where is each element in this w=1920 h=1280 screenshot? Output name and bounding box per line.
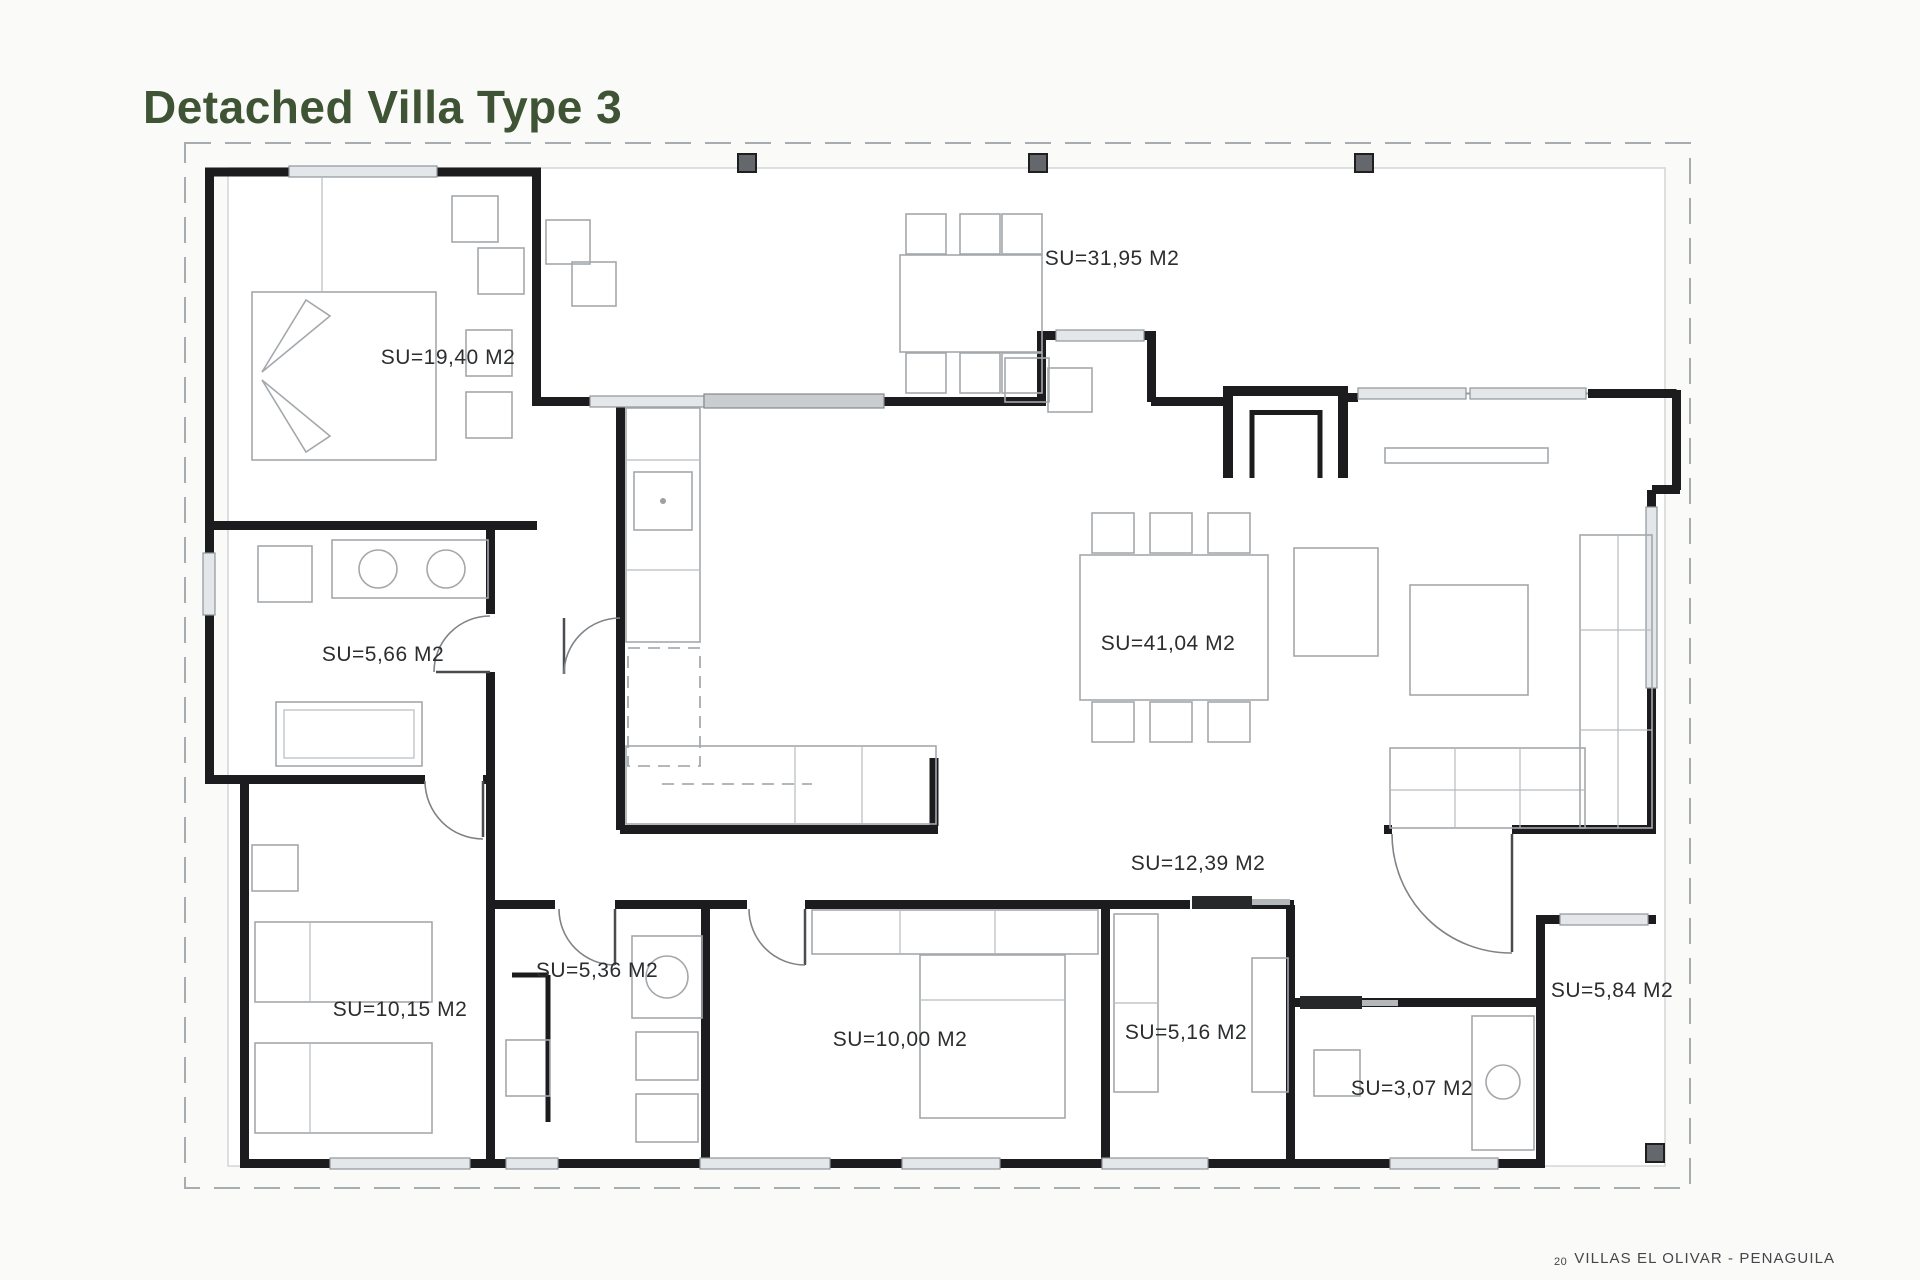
room-label-bathroom-1: SU=5,66 M2	[322, 643, 444, 666]
window	[289, 166, 437, 177]
window	[1560, 914, 1648, 925]
pillar-icon	[1029, 154, 1047, 172]
window	[1470, 388, 1586, 399]
floor-plan: SU=19,40 M2 SU=31,95 M2 SU=5,66 M2 SU=41…	[0, 0, 1920, 1280]
room-label-hallway: SU=12,39 M2	[1131, 852, 1266, 875]
door-panel-dressing	[1192, 896, 1252, 909]
pillar-icon	[1646, 1144, 1664, 1162]
window	[1358, 388, 1466, 399]
window	[1390, 1158, 1498, 1169]
door-stub	[1362, 1000, 1398, 1006]
room-label-bedroom-1: SU=19,40 M2	[381, 346, 516, 369]
stove-knob	[660, 498, 666, 504]
window	[506, 1158, 558, 1169]
window	[1056, 330, 1144, 341]
pillar-icon	[1355, 154, 1373, 172]
window	[704, 394, 884, 408]
room-label-bedroom-2: SU=10,15 M2	[333, 998, 468, 1021]
pillar-icon	[738, 154, 756, 172]
footer-project-name: VILLAS EL OLIVAR - PENAGUILA	[1574, 1250, 1835, 1267]
footer-page-number: 20	[1554, 1256, 1567, 1268]
window	[203, 553, 215, 615]
room-label-living-dining: SU=41,04 M2	[1101, 632, 1236, 655]
window	[330, 1158, 470, 1169]
window	[590, 396, 704, 407]
footer: 20VILLAS EL OLIVAR - PENAGUILA	[1554, 1250, 1835, 1267]
window	[1102, 1158, 1208, 1169]
room-label-bathroom-2: SU=5,36 M2	[536, 959, 658, 982]
room-label-porch: SU=5,84 M2	[1551, 979, 1673, 1002]
window	[902, 1158, 1000, 1169]
room-label-dressing: SU=5,16 M2	[1125, 1021, 1247, 1044]
door-panel-wc	[1300, 996, 1362, 1009]
wall-left-lower	[205, 779, 249, 1168]
room-label-terrace: SU=31,95 M2	[1045, 247, 1180, 270]
window	[700, 1158, 830, 1169]
room-label-bedroom-3: SU=10,00 M2	[833, 1028, 968, 1051]
room-label-wc: SU=3,07 M2	[1351, 1077, 1473, 1100]
door-stub	[1252, 899, 1290, 905]
